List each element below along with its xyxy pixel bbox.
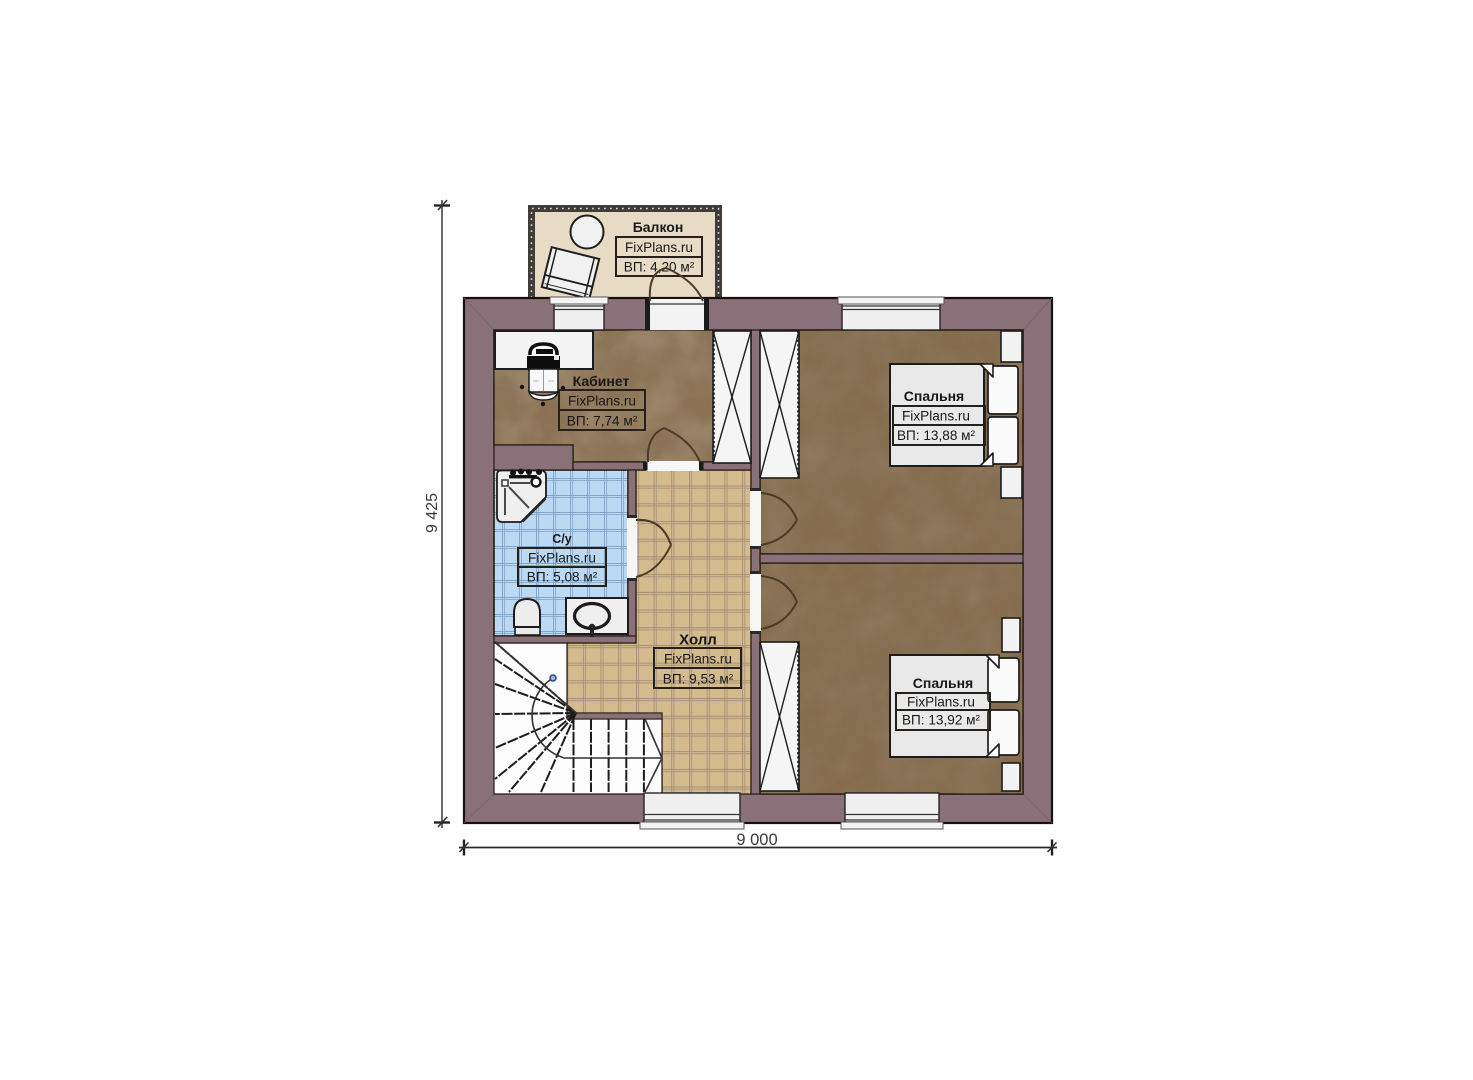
- svg-text:Кабинет: Кабинет: [573, 373, 630, 389]
- svg-text:Балкон: Балкон: [633, 219, 684, 235]
- svg-text:FixPlans.ru: FixPlans.ru: [907, 695, 975, 710]
- svg-text:С/у: С/у: [552, 532, 572, 546]
- svg-text:ВП: 7,74 м²: ВП: 7,74 м²: [567, 414, 638, 429]
- svg-text:FixPlans.ru: FixPlans.ru: [902, 409, 970, 424]
- svg-text:FixPlans.ru: FixPlans.ru: [568, 394, 636, 409]
- svg-text:FixPlans.ru: FixPlans.ru: [625, 240, 693, 255]
- svg-text:ВП: 5,08 м²: ВП: 5,08 м²: [527, 570, 598, 585]
- svg-text:FixPlans.ru: FixPlans.ru: [664, 652, 732, 667]
- svg-text:ВП: 13,92 м²: ВП: 13,92 м²: [902, 713, 981, 728]
- svg-text:ВП: 9,53 м²: ВП: 9,53 м²: [663, 672, 734, 687]
- svg-text:Холл: Холл: [679, 632, 717, 649]
- svg-text:ВП: 13,88 м²: ВП: 13,88 м²: [897, 428, 976, 443]
- svg-text:ВП: 4,20 м²: ВП: 4,20 м²: [624, 260, 695, 275]
- svg-text:FixPlans.ru: FixPlans.ru: [528, 551, 596, 566]
- svg-text:Спальня: Спальня: [904, 388, 964, 404]
- svg-text:9 000: 9 000: [736, 831, 777, 849]
- svg-text:9 425: 9 425: [424, 493, 441, 533]
- svg-text:Спальня: Спальня: [913, 675, 973, 691]
